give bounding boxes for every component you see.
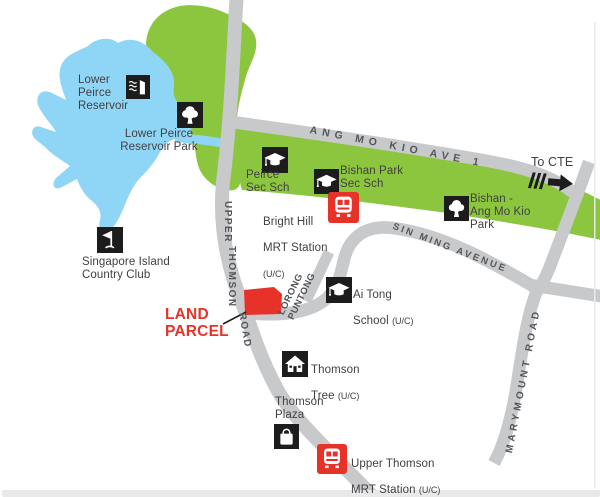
label-bishan-park-sec-sch: Bishan Park Sec Sch [340, 165, 403, 191]
label-lower-peirce-reservoir-park: Lower Peirce Reservoir Park [104, 128, 214, 154]
arrow-right-icon [528, 170, 574, 194]
label-line: School (U/C) [353, 315, 414, 328]
label-text: MRT Station [351, 484, 416, 496]
label-thomson-plaza: Thomson Plaza [275, 396, 324, 422]
label-text: School [353, 315, 389, 327]
label-line: MRT Station (U/C) [351, 484, 440, 497]
under-construction-tag: (U/C) [419, 485, 441, 495]
label-line: MRT Station [263, 242, 328, 255]
label-line: Bright Hill [263, 216, 328, 229]
graduation-cap-icon [314, 169, 339, 194]
right-edge-line [594, 22, 596, 488]
road-label-thomson: THOMSON [226, 246, 237, 308]
under-construction-tag: (U/C) [392, 316, 414, 326]
dam-icon [126, 75, 150, 99]
label-line: Upper Thomson [351, 458, 440, 471]
label-to-cte: To CTE [531, 156, 573, 169]
label-ai-tong-school: Ai Tong School (U/C) [353, 276, 414, 341]
label-line: Ai Tong [353, 289, 414, 302]
house-icon [282, 351, 308, 377]
label-line: Thomson [311, 364, 360, 377]
label-lower-peirce-reservoir: Lower Peirce Reservoir [78, 74, 128, 113]
bottom-edge-bar [2, 490, 600, 497]
golf-flag-icon [97, 227, 123, 253]
tree-icon [177, 102, 203, 128]
tree-icon [444, 196, 469, 221]
road-label-upper: UPPER [222, 201, 233, 243]
under-construction-tag: (U/C) [338, 391, 360, 401]
shopping-bag-icon [274, 424, 299, 449]
label-upper-thomson-mrt-station: Upper Thomson MRT Station (U/C) [351, 445, 440, 497]
location-map-canvas: Lower Peirce Reservoir Lower Peirce Rese… [0, 0, 600, 497]
label-peirce-sec-sch: Peirce Sec Sch [246, 169, 290, 195]
label-singapore-island-country-club: Singapore Island Country Club [82, 256, 170, 282]
label-land-parcel: LAND PARCEL [165, 307, 229, 340]
mrt-train-icon [317, 444, 347, 474]
graduation-cap-icon [326, 277, 352, 303]
label-bishan-ang-mo-kio-park: Bishan - Ang Mo Kio Park [470, 193, 530, 232]
mrt-train-icon [328, 192, 359, 223]
